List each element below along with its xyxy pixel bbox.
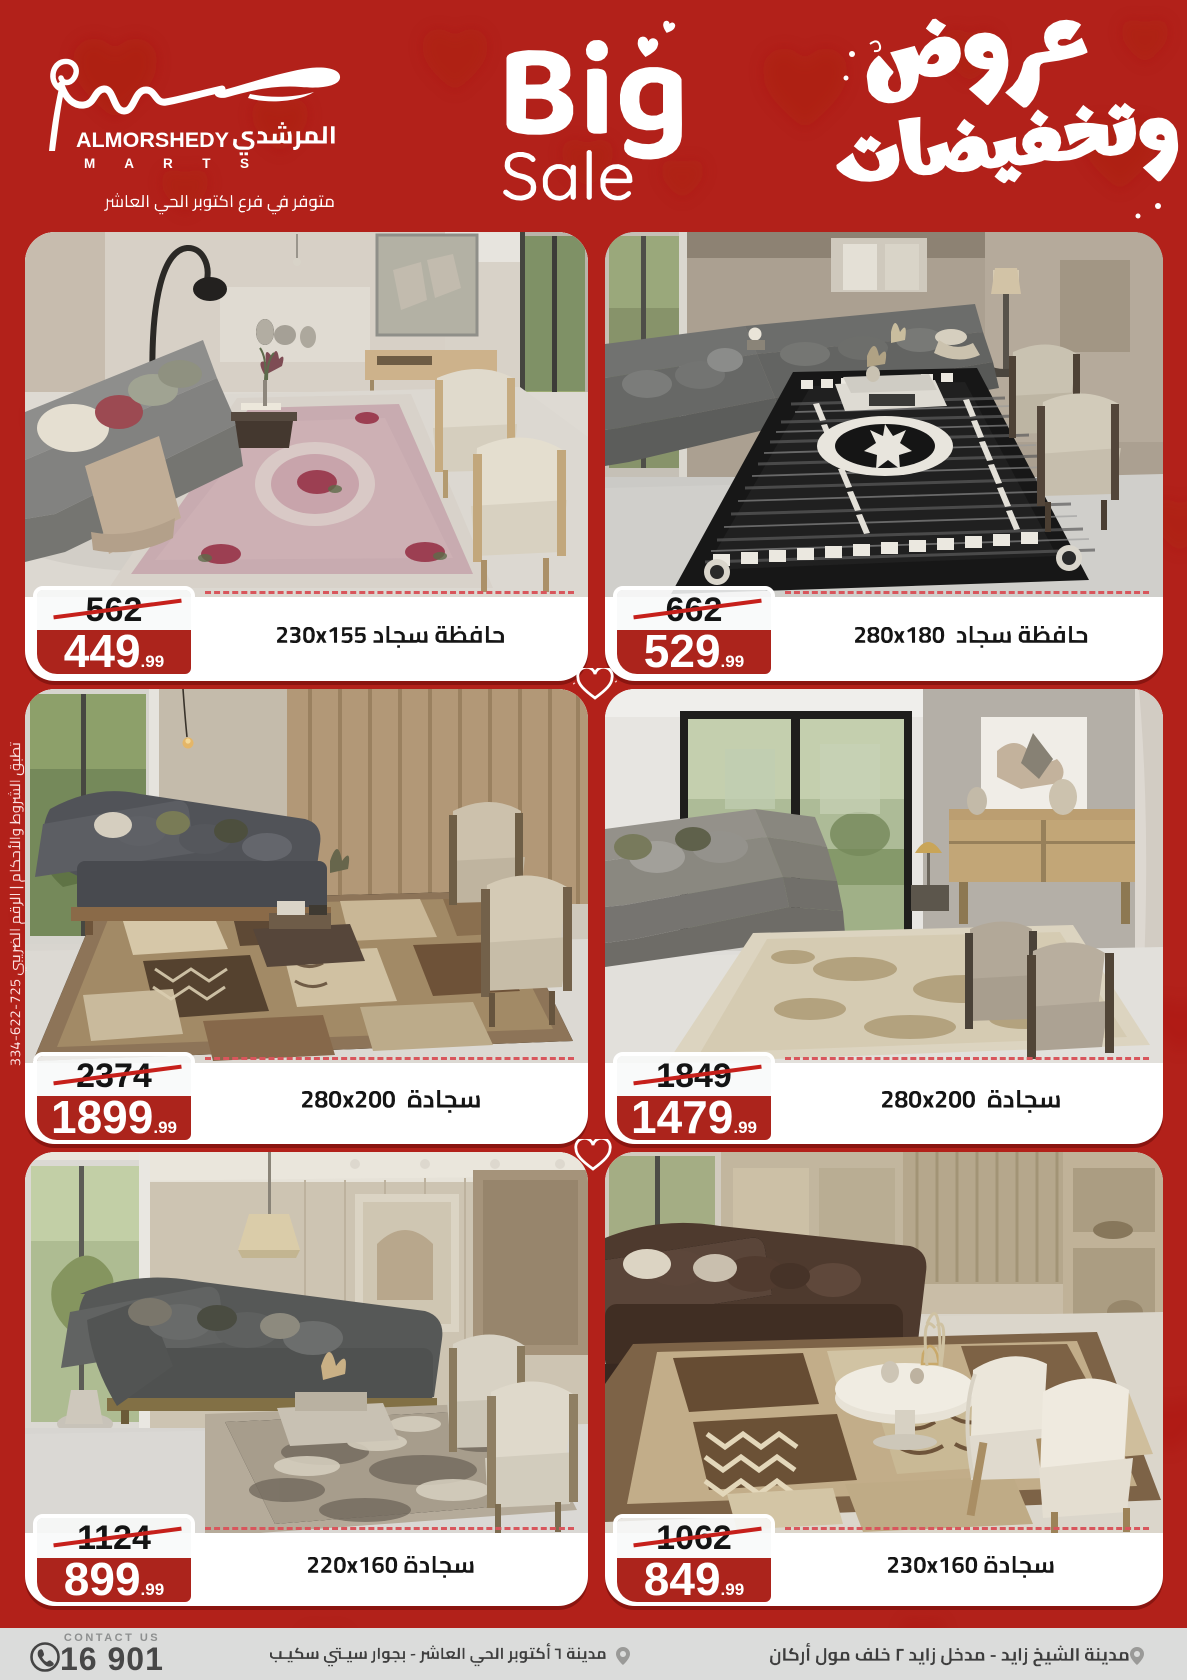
svg-text:M A R T S: M A R T S [84, 156, 249, 171]
svg-text:ALMORSHEDY: ALMORSHEDY [76, 129, 229, 152]
